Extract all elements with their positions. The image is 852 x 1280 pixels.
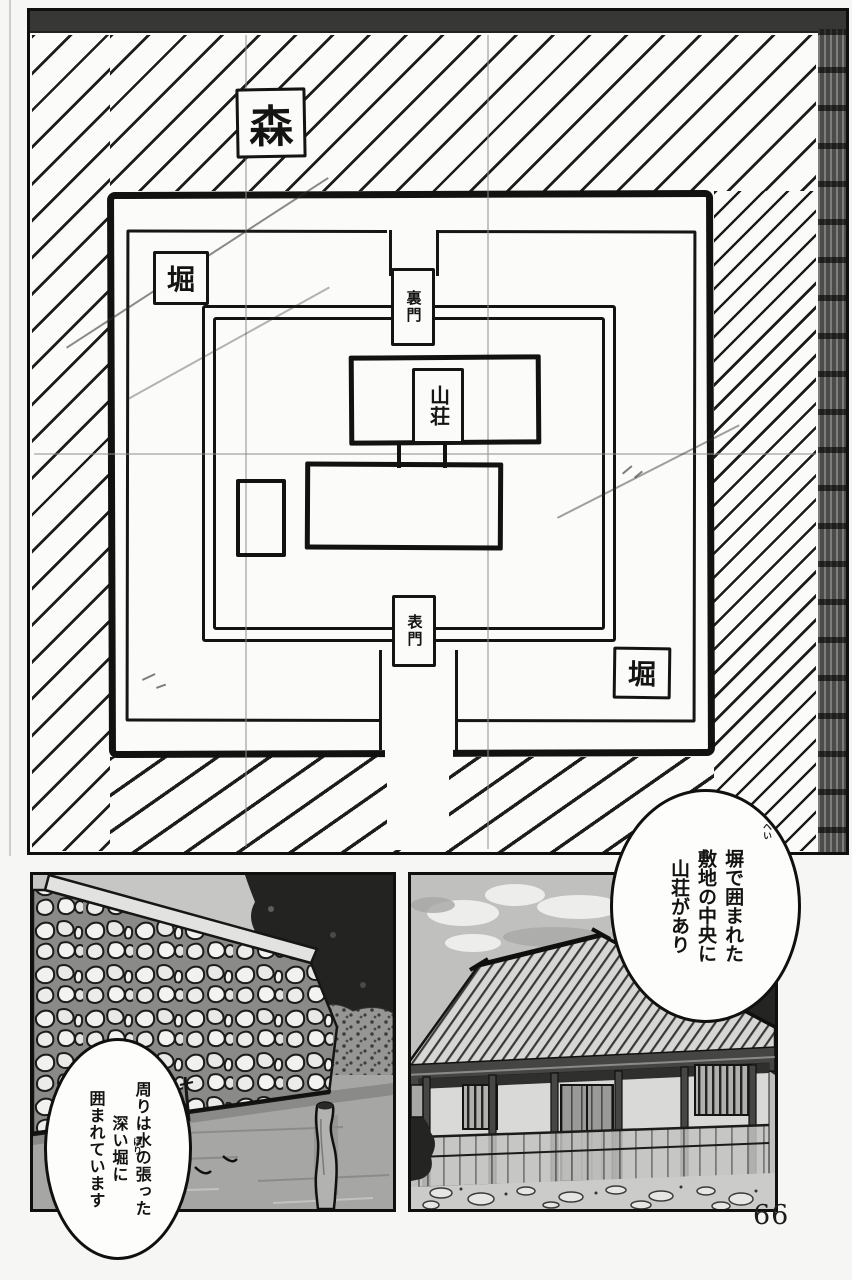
manga-page: 森 堀 堀 裏門 表門 山荘 xyxy=(0,0,852,1280)
speech-bubble-villa: 塀で囲まれた 敷地の中央に 山荘があり へい xyxy=(610,789,801,1023)
page-number: 66 xyxy=(753,1200,789,1231)
forest-label-box: 森 xyxy=(235,87,306,158)
front-gate-path xyxy=(387,758,449,850)
moat-bubble-furigana: ほり xyxy=(131,1137,144,1155)
small-outbuilding xyxy=(236,479,286,557)
back-gate-box: 裏門 xyxy=(391,268,435,346)
front-gate-bridge-left xyxy=(379,650,382,750)
villa-bubble-text: 塀で囲まれた 敷地の中央に 山荘があり xyxy=(664,806,747,1006)
villa-bubble-furigana: へい xyxy=(761,822,774,840)
back-gate-gap xyxy=(387,228,439,236)
villa-bubble-line-2: 敷地の中央に xyxy=(693,806,718,1006)
front-gate-label: 表門 xyxy=(404,614,425,648)
forest-hatch-left xyxy=(32,35,110,851)
forest-hatch-top xyxy=(110,35,816,191)
front-gate-gap-wall xyxy=(385,748,453,758)
forest-hatch-right xyxy=(714,191,816,851)
villa-bubble-line-3: 山荘があり xyxy=(666,806,691,1006)
villa-label-box: 山荘 xyxy=(412,368,464,444)
wall-texture-top xyxy=(30,11,846,33)
back-gate-bridge-right xyxy=(436,230,439,276)
annex-building xyxy=(305,461,503,550)
front-gate-bridge-right xyxy=(455,650,458,750)
building-wall xyxy=(419,1063,769,1191)
wooden-post xyxy=(316,1103,337,1210)
moat-label-box-topleft: 堀 xyxy=(153,251,209,305)
map-panel: 森 堀 堀 裏門 表門 山荘 xyxy=(27,8,849,855)
moat-bubble-line-2: 深い堀に xyxy=(107,1053,128,1245)
villa-bubble-line-1: 塀で囲まれた xyxy=(720,806,745,1006)
forest-label: 森 xyxy=(248,91,293,156)
stone-column-right xyxy=(818,29,846,852)
wall-stub xyxy=(411,1085,423,1117)
moat-label-top: 堀 xyxy=(167,258,195,298)
front-gate-box: 表門 xyxy=(392,595,436,667)
moat-bubble-line-3: 囲まれています xyxy=(84,1053,105,1245)
speech-bubble-moat: 周りは水の張った 深い堀に 囲まれています ほり xyxy=(44,1038,192,1260)
villa-label: 山荘 xyxy=(424,385,453,427)
back-gate-label: 裏門 xyxy=(403,290,424,324)
page-edge-line xyxy=(9,0,11,856)
front-gate-gap-moat xyxy=(382,715,456,723)
moat-label-box-bottomright: 堀 xyxy=(613,647,672,700)
slat-window-right xyxy=(695,1065,751,1115)
moat-label-bottom: 堀 xyxy=(628,653,657,693)
